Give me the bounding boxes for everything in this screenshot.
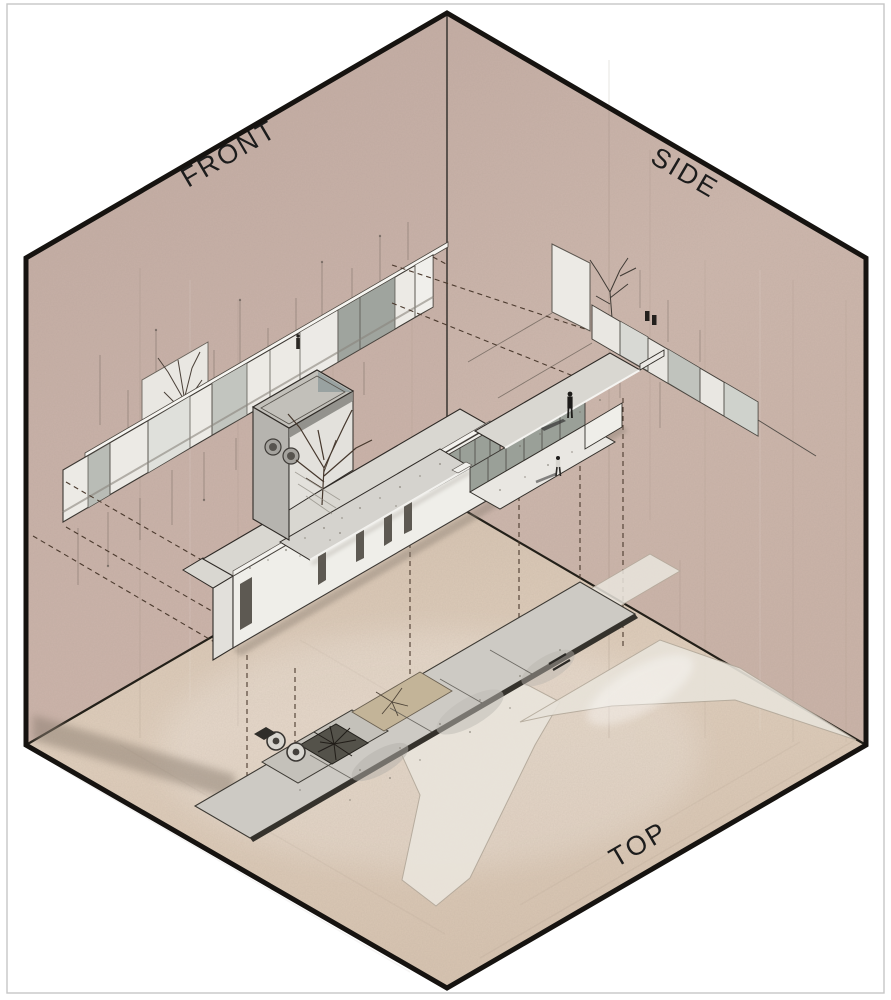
axonometric-diagram: FRONT SIDE TOP bbox=[0, 0, 891, 1000]
axonometric-diagram-page: FRONT SIDE TOP bbox=[0, 0, 891, 1000]
front-elevation-figure bbox=[296, 334, 300, 349]
courtyard-cylinder-2-top bbox=[287, 452, 295, 460]
plan-skylight-2-core bbox=[293, 749, 300, 756]
side-elevation-vent-2 bbox=[652, 315, 657, 325]
bar-end-face bbox=[213, 576, 233, 660]
plan-skylight-1-core bbox=[273, 738, 280, 745]
courtyard-box-left-face bbox=[253, 407, 289, 540]
side-elevation-vent-1 bbox=[645, 311, 650, 321]
courtyard-cylinder-1-top bbox=[269, 443, 277, 451]
